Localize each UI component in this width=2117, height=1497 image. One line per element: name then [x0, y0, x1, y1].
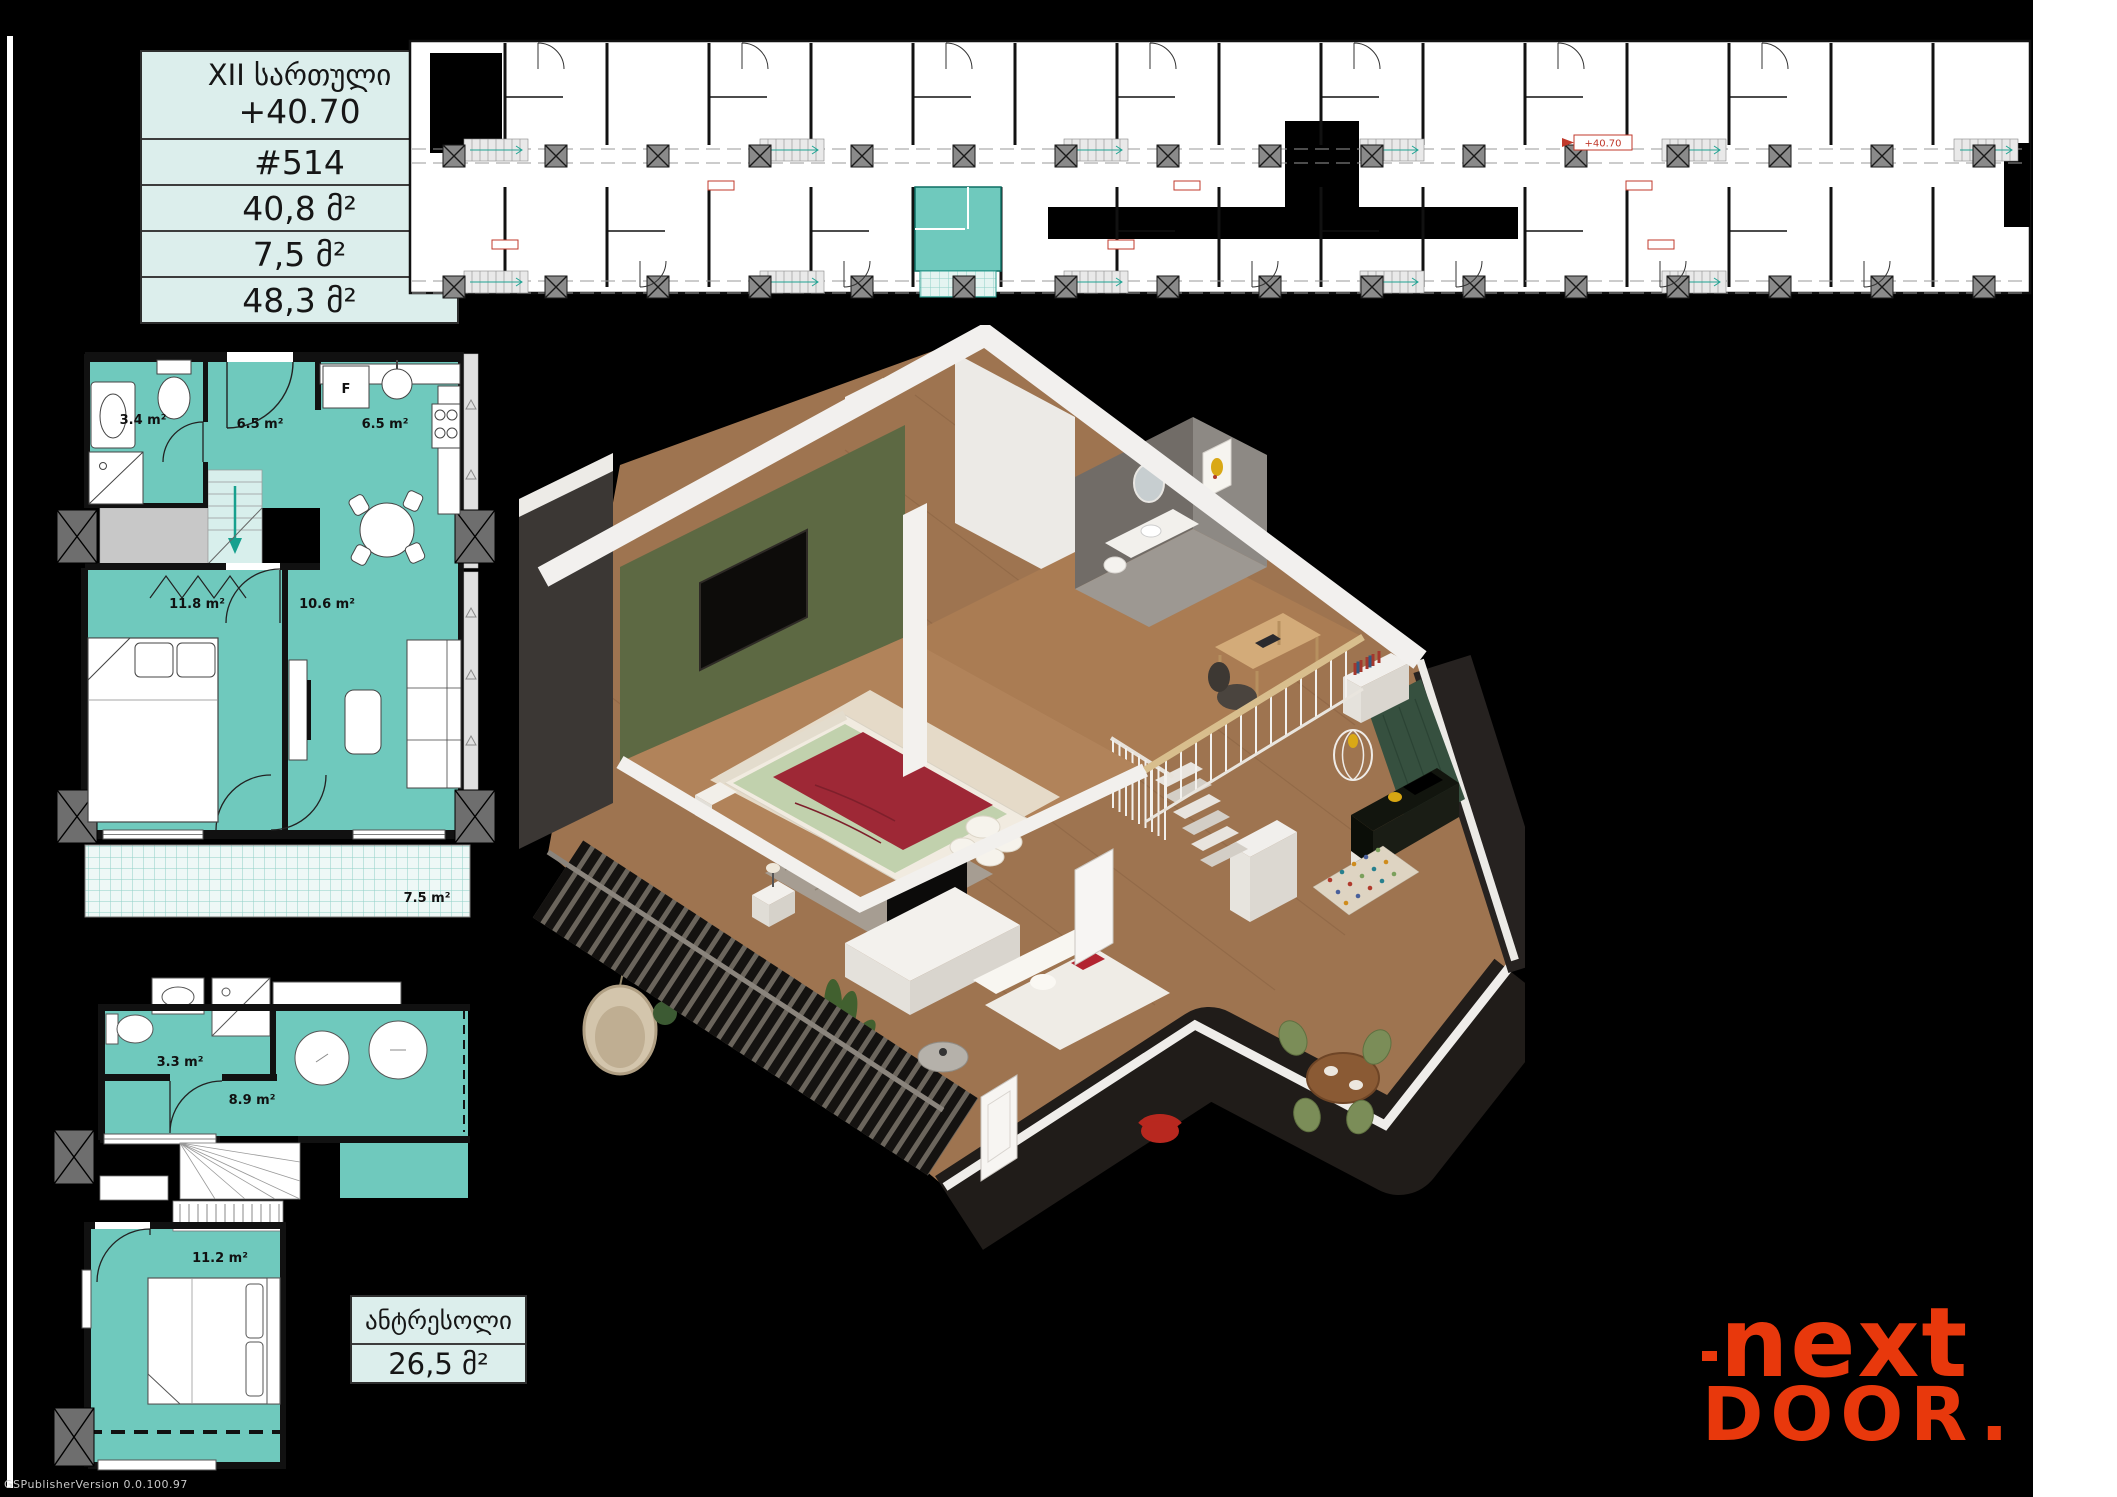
plan-sheet: XII სართული +40.70 #514 40,8 მ² 7,5 მ² 4…: [0, 0, 2117, 1497]
left-border-line: [7, 36, 13, 1488]
left-exterior-wall: [519, 465, 613, 849]
label-balcony-area: 7.5 m²: [404, 891, 451, 906]
label-bedroom-area: 11.8 m²: [169, 597, 225, 612]
side-table: [918, 1042, 968, 1072]
label-mezz-bathroom-area: 3.3 m²: [157, 1055, 204, 1070]
mezzanine-title: ანტრესოლი: [352, 1297, 525, 1343]
logo-text-next: next: [1720, 1306, 1969, 1381]
logo-text-door: DOOR: [1702, 1387, 1974, 1445]
brand-logo: next DOOR .: [1702, 1306, 2015, 1445]
floor-plan-mezzanine-body: 3.3 m² 8.9 m² 11.2 m²: [54, 978, 470, 1470]
elevation-marker-text: +40.70: [1584, 139, 1621, 150]
mezzanine-info-box: ანტრესოლი 26,5 მ²: [350, 1295, 527, 1384]
mezzanine-area-value: 26,5 მ²: [352, 1343, 525, 1382]
elevation-value: +40.70: [238, 93, 360, 131]
logo-dot: .: [1980, 1387, 2015, 1445]
floor-plan-main: 3.4 m² 6.5 m² 6.5 m² 11.8 m² 10.6 m² 7.5…: [55, 340, 505, 925]
building-storey-plan: +40.70: [408, 35, 2032, 303]
label-hall-area: 6.5 m²: [237, 417, 284, 432]
floor-plan-mezzanine: 3.3 m² 8.9 m² 11.2 m²: [40, 970, 480, 1480]
render-body: [519, 332, 1525, 1213]
floor-plan-main-body: 3.4 m² 6.5 m² 6.5 m² 11.8 m² 10.6 m² 7.5…: [57, 352, 495, 923]
storey-plan-body: +40.70: [410, 41, 2030, 298]
label-mezz-hall-area: 8.9 m²: [229, 1093, 276, 1108]
label-fridge: F: [342, 382, 351, 397]
label-kitchen-area: 6.5 m²: [362, 417, 409, 432]
floor-label: XII სართული: [208, 59, 391, 92]
right-margin-strip: [2033, 0, 2117, 1497]
label-bathroom-area: 3.4 m²: [120, 413, 167, 428]
publisher-watermark: GSPublisherVersion 0.0.100.97: [4, 1478, 188, 1491]
accent-chair: [1141, 1118, 1179, 1143]
apartment-3d-render: [515, 325, 1525, 1265]
logo-n-dash: [1702, 1351, 1717, 1361]
label-living-area: 10.6 m²: [299, 597, 355, 612]
label-mezz-bedroom-area: 11.2 m²: [192, 1251, 248, 1266]
